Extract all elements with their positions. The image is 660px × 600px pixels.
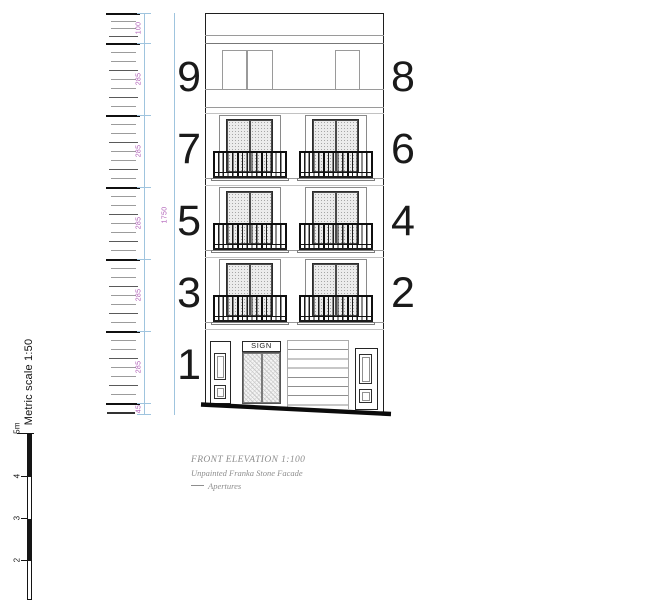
- dimension-tick: [137, 13, 151, 14]
- scale-bar-tick: [21, 518, 27, 519]
- aperture-line-symbol: [191, 485, 204, 486]
- floor-number-left: 3: [157, 271, 201, 315]
- ruler-tick-major: [106, 259, 140, 261]
- legend-apertures-label: Apertures: [208, 481, 241, 491]
- scale-bar: [27, 434, 32, 600]
- scale-bar-label: 2: [13, 558, 22, 563]
- ruler-tick-minor: [111, 349, 136, 350]
- dimension-segment-label: 100: [136, 22, 143, 35]
- ruler-tick-mid: [109, 36, 138, 37]
- ruler-tick-minor: [111, 106, 136, 107]
- ruler-tick-minor: [111, 376, 136, 377]
- ruler-tick-minor: [111, 223, 136, 224]
- floor-number-left: 7: [157, 127, 201, 171]
- ruler-tick-major: [106, 115, 140, 117]
- scale-bar-label: 4: [13, 474, 22, 479]
- legend-apertures: Apertures: [191, 481, 361, 491]
- ruler-tick-minor: [111, 178, 136, 179]
- ruler-tick-minor: [111, 151, 136, 152]
- dimension-tick: [137, 331, 151, 332]
- ruler-tick-minor: [111, 340, 136, 341]
- ruler-tick-minor: [111, 133, 136, 134]
- ruler-tick-mid: [109, 70, 138, 71]
- ruler-tick-major: [106, 187, 140, 189]
- metric-scale-label: Metric scale 1:50: [23, 339, 35, 426]
- scale-bar-segment: [28, 519, 31, 561]
- ruler-tick-minor: [111, 295, 136, 296]
- ruler-tick-mid: [109, 169, 138, 170]
- ruler-tick-major: [106, 331, 140, 333]
- scale-bar-segment: [28, 561, 31, 599]
- scale-bar-label: 3: [13, 516, 22, 521]
- elevation-drawing-canvas: SIGN FRONT ELEVATION 1:100 Unpainted Fra…: [0, 0, 660, 600]
- title-block: FRONT ELEVATION 1:100 Unpainted Franka S…: [191, 455, 361, 491]
- ruler-tick-minor: [111, 367, 136, 368]
- ruler-tick-mid: [109, 286, 138, 287]
- dimension-segment-label: 285: [136, 361, 143, 374]
- dimension-segment-label: 285: [136, 145, 143, 158]
- scale-bar-tick: [21, 560, 27, 561]
- ground-slope-line: [201, 405, 391, 415]
- floor-number-right: 8: [391, 55, 435, 99]
- dimension-tick: [137, 187, 151, 188]
- ruler-tick-minor: [111, 250, 136, 251]
- ruler-tick-minor: [111, 21, 136, 22]
- dimension-bracket-line: [144, 13, 145, 414]
- ruler-tick-minor: [111, 52, 136, 53]
- dimension-segment-label: 285: [136, 217, 143, 230]
- scale-bar-label: 5m: [13, 422, 22, 434]
- ruler-tick-minor: [111, 232, 136, 233]
- ruler-tick-minor: [111, 28, 136, 29]
- ruler-tick-minor: [111, 205, 136, 206]
- ruler-tick-minor: [111, 79, 136, 80]
- dimension-tick: [137, 259, 151, 260]
- ruler-tick-mid: [109, 385, 138, 386]
- ruler-tick-mid: [109, 97, 138, 98]
- ruler-tick-minor: [111, 268, 136, 269]
- scale-bar-segment: [28, 477, 31, 519]
- ruler-tick-minor: [111, 124, 136, 125]
- dimension-segment-label: 285: [136, 289, 143, 302]
- floor-number-right: 6: [391, 127, 435, 171]
- ruler-tick-major: [106, 13, 140, 15]
- material-note: Unpainted Franka Stone Facade: [191, 468, 361, 478]
- dimension-tick: [137, 43, 151, 44]
- ruler-tick-major: [107, 412, 135, 414]
- ruler-tick-mid: [109, 241, 138, 242]
- ruler-tick-mid: [109, 358, 138, 359]
- dimension-segment-label: 285: [136, 73, 143, 86]
- floor-number-left: 5: [157, 199, 201, 243]
- scale-bar-segment: [28, 435, 31, 477]
- ruler-tick-minor: [111, 394, 136, 395]
- ruler-tick-minor: [111, 196, 136, 197]
- ruler-tick-minor: [111, 277, 136, 278]
- scale-bar-tick: [21, 476, 27, 477]
- ruler-tick-minor: [111, 304, 136, 305]
- ruler-tick-minor: [111, 88, 136, 89]
- ground-layer: [0, 0, 660, 600]
- ruler-tick-minor: [111, 160, 136, 161]
- floor-number-right: 4: [391, 199, 435, 243]
- floor-number-left: 9: [157, 55, 201, 99]
- ruler-tick-mid: [109, 313, 138, 314]
- dimension-tick: [137, 115, 151, 116]
- dimension-segment-label: 45: [136, 404, 143, 412]
- floor-number-right: 2: [391, 271, 435, 315]
- ruler-tick-mid: [109, 142, 138, 143]
- dimension-tick: [137, 414, 151, 415]
- ruler-tick-minor: [111, 61, 136, 62]
- ruler-tick-major: [106, 43, 140, 45]
- ruler-tick-mid: [109, 214, 138, 215]
- drawing-title: FRONT ELEVATION 1:100: [191, 455, 361, 465]
- ruler-tick-minor: [111, 322, 136, 323]
- floor-number-left: 1: [157, 343, 201, 387]
